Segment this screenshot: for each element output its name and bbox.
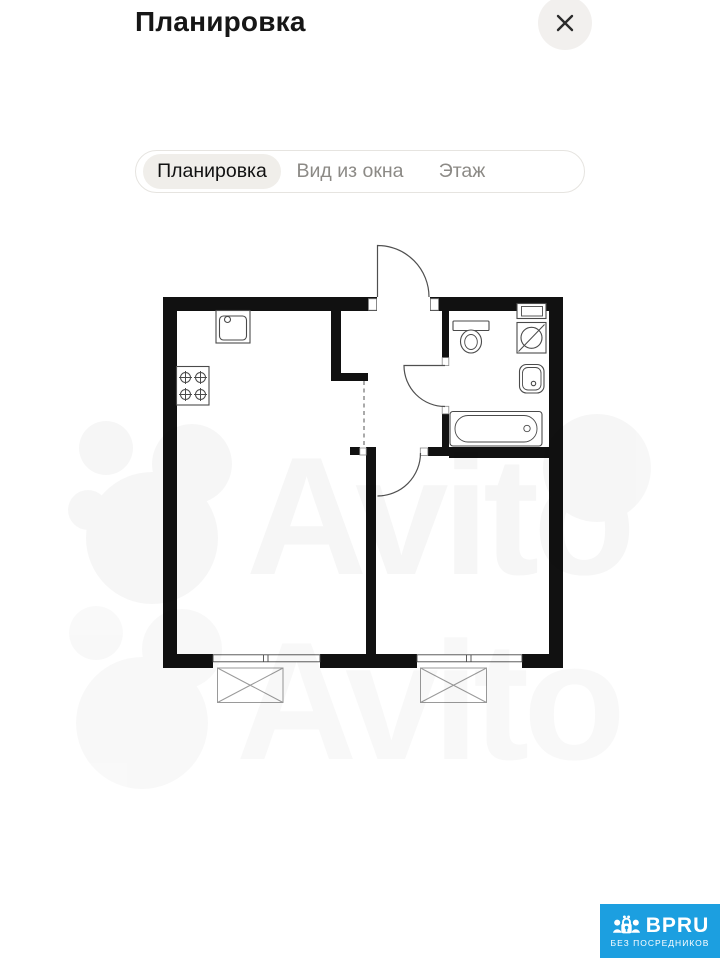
close-icon	[554, 12, 576, 34]
floor-plan-photo[interactable]: Avito Avito	[0, 0, 720, 960]
washbasin-icon	[520, 365, 545, 394]
tab-etazh-label: Этаж	[439, 160, 486, 183]
shelf-icon	[517, 304, 546, 319]
people-lock-icon	[611, 914, 642, 937]
tab-vid-iz-okna-label: Вид из окна	[297, 160, 404, 183]
bpru-badge: BPRU БЕЗ ПОСРЕДНИКОВ	[600, 904, 720, 958]
washing-machine-icon	[517, 323, 546, 354]
tab-bar: Планировка Вид из окна Этаж	[135, 150, 585, 193]
tab-planirovka[interactable]: Планировка	[143, 154, 281, 189]
watermark-text: Avito	[246, 422, 630, 610]
kitchen-sink-icon	[216, 311, 250, 344]
avito-watermark-tile-2: Avito	[69, 606, 620, 795]
tab-planirovka-label: Планировка	[157, 160, 267, 183]
badge-subtitle: БЕЗ ПОСРЕДНИКОВ	[611, 938, 710, 948]
kitchen-fixtures	[177, 311, 251, 406]
watermark-text-2: Avito	[236, 607, 620, 795]
entrance-door	[378, 246, 430, 298]
stove-icon	[177, 367, 210, 406]
tab-etazh[interactable]: Этаж	[432, 151, 492, 192]
page-title: Планировка	[135, 6, 306, 38]
bathroom-door	[404, 366, 445, 407]
floor-plan-image: Avito Avito	[0, 0, 720, 960]
tab-vid-iz-okna[interactable]: Вид из окна	[291, 151, 409, 192]
avito-watermark: Avito	[68, 414, 651, 610]
close-button[interactable]	[538, 0, 592, 50]
toilet-icon	[453, 321, 489, 353]
modal-header: Планировка	[0, 0, 720, 90]
badge-brand-text: BPRU	[646, 915, 710, 937]
